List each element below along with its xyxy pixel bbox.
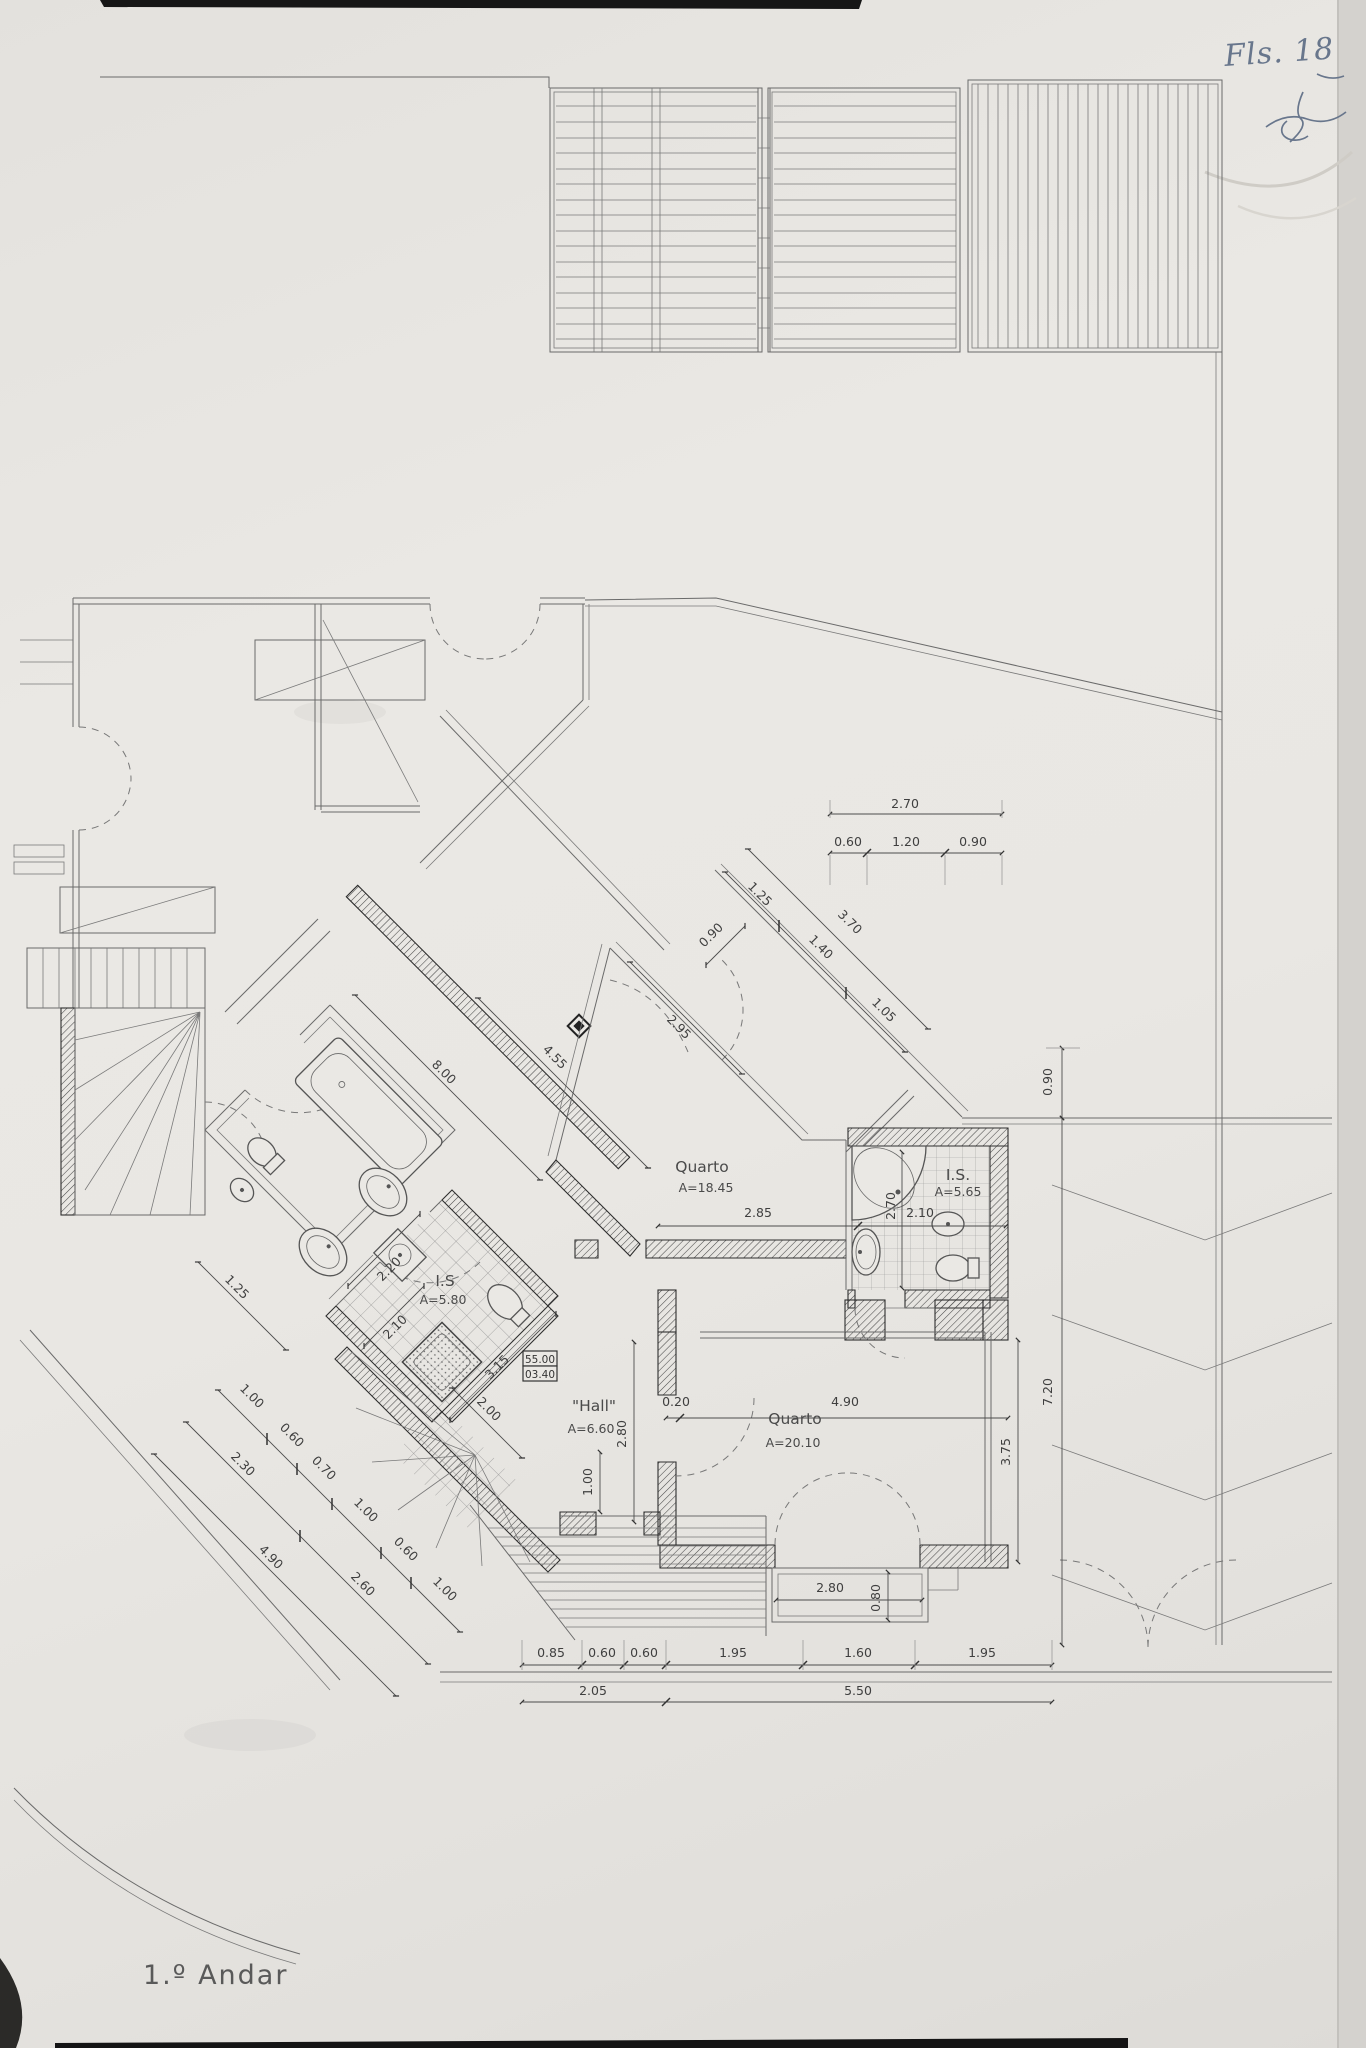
bathtub bbox=[293, 1036, 444, 1187]
floor-title: 1.º Andar bbox=[143, 1960, 288, 1991]
dim-left-mid1: 2.30 bbox=[228, 1449, 258, 1479]
dim-bottom-total-b: 5.50 bbox=[844, 1683, 872, 1698]
room-area-is1: A=5.65 bbox=[935, 1184, 982, 1199]
handwritten-note: Fls. 18 bbox=[1222, 31, 1346, 142]
wardrobe bbox=[255, 640, 425, 700]
dim-top-b: 1.20 bbox=[892, 834, 920, 849]
level-upper-value: 55.00 bbox=[525, 1354, 555, 1366]
dim-bottom-3: 0.60 bbox=[630, 1645, 658, 1660]
corridor bbox=[346, 710, 968, 1169]
dim-left-5: 0.60 bbox=[391, 1534, 421, 1564]
room-area-is2: A=5.80 bbox=[420, 1292, 467, 1307]
dim-corridor-length: 8.00 bbox=[429, 1057, 459, 1087]
folio-note-text: Fls. 18 bbox=[1222, 31, 1335, 74]
dim-right-offset: 0.90 bbox=[1040, 1068, 1055, 1096]
room-area-quarto2: A=20.10 bbox=[766, 1435, 821, 1450]
dim-quarto2-depth: 3.75 bbox=[998, 1438, 1013, 1466]
slope-chevrons-icon bbox=[1052, 1185, 1332, 1630]
dim-bottom-5: 1.60 bbox=[844, 1645, 872, 1660]
dim-top-a: 0.60 bbox=[834, 834, 862, 849]
staircase-upper bbox=[27, 948, 267, 1215]
dim-diag-offset: 0.90 bbox=[696, 920, 726, 950]
neighbor-unit bbox=[14, 598, 589, 1024]
dim-bottom-2: 0.60 bbox=[588, 1645, 616, 1660]
washbasin bbox=[852, 1229, 880, 1275]
dim-left-2: 0.60 bbox=[277, 1420, 307, 1450]
hall: "Hall" A=6.60 55.00 03.40 bbox=[523, 1351, 660, 1535]
dim-quarto1-width: 2.85 bbox=[744, 1205, 772, 1220]
dim-left-far: 1.25 bbox=[222, 1272, 252, 1302]
dim-top-c: 0.90 bbox=[959, 834, 987, 849]
washbasin bbox=[290, 1219, 356, 1285]
dim-left-3: 0.70 bbox=[309, 1453, 339, 1483]
room-label-quarto1: Quarto bbox=[675, 1158, 728, 1176]
toilet bbox=[936, 1255, 979, 1281]
dim-left-1: 1.00 bbox=[237, 1381, 267, 1411]
room-label-is1: I.S. bbox=[946, 1166, 970, 1184]
scanned-floor-plan-page: Fls. 18 bbox=[0, 0, 1366, 2048]
dim-left-total: 4.90 bbox=[256, 1542, 286, 1572]
dim-is1-width: 2.10 bbox=[906, 1205, 934, 1220]
staircase-lower bbox=[335, 1347, 766, 1640]
dim-corridor-wall: 4.55 bbox=[540, 1042, 570, 1072]
dim-quarto2-width: 4.90 bbox=[831, 1394, 859, 1409]
room-area-hall: A=6.60 bbox=[568, 1421, 615, 1436]
level-lower-value: 03.40 bbox=[525, 1369, 555, 1381]
dim-bottom-total-a: 2.05 bbox=[579, 1683, 607, 1698]
room-label-quarto2: Quarto bbox=[768, 1410, 821, 1428]
dim-hall-height: 2.80 bbox=[614, 1420, 629, 1448]
dim-left-6: 1.00 bbox=[430, 1574, 460, 1604]
dim-right-length: 7.20 bbox=[1040, 1378, 1055, 1406]
balcony bbox=[772, 1568, 958, 1622]
dim-bottom-1: 0.85 bbox=[537, 1645, 565, 1660]
dim-bottom-4: 1.95 bbox=[719, 1645, 747, 1660]
dim-hall-width: 1.00 bbox=[580, 1468, 595, 1496]
room-area-quarto1: A=18.45 bbox=[679, 1180, 734, 1195]
dim-balcony-width: 2.80 bbox=[816, 1580, 844, 1595]
dim-left-mid2: 2.60 bbox=[348, 1569, 378, 1599]
floor-plan-drawing: Fls. 18 bbox=[0, 0, 1366, 2048]
level-marker: 55.00 03.40 bbox=[523, 1351, 557, 1381]
signature-icon bbox=[1266, 92, 1346, 142]
toilet bbox=[242, 1132, 286, 1176]
dim-left-4: 1.00 bbox=[351, 1495, 381, 1525]
dim-balcony-depth: 0.80 bbox=[868, 1584, 883, 1612]
dim-quarto2-gap: 0.20 bbox=[662, 1394, 690, 1409]
room-quarto-2010: Quarto A=20.10 bbox=[658, 1332, 1008, 1568]
dim-landing: 2.00 bbox=[474, 1394, 504, 1424]
bidet bbox=[932, 1212, 964, 1236]
pergola-structure bbox=[100, 77, 1222, 352]
dim-top-total: 2.70 bbox=[891, 796, 919, 811]
dim-diag-total: 3.70 bbox=[835, 907, 865, 937]
room-label-hall: "Hall" bbox=[572, 1397, 616, 1415]
dim-bottom-6: 1.95 bbox=[968, 1645, 996, 1660]
room-label-is2: I.S bbox=[435, 1272, 454, 1290]
half-wall bbox=[60, 887, 215, 933]
dim-is1-height: 2.70 bbox=[883, 1192, 898, 1220]
